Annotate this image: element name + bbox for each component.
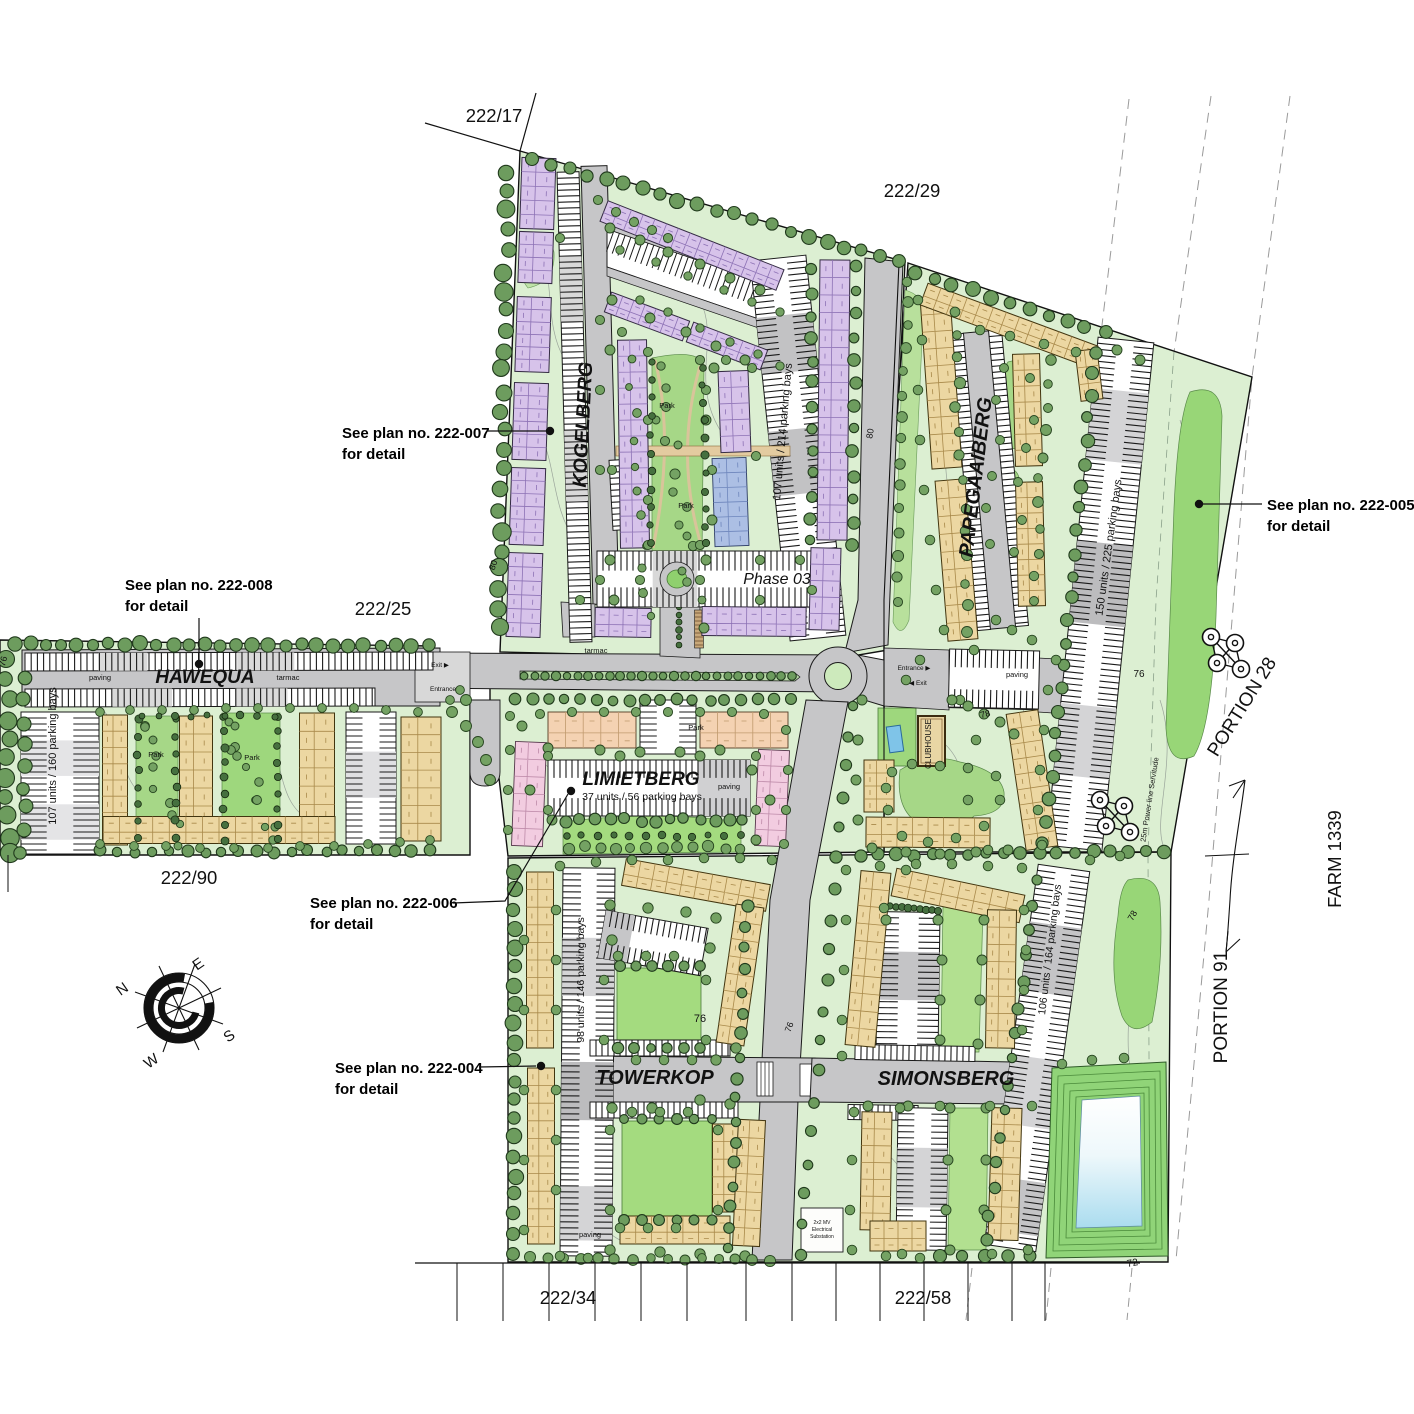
svg-text:FARM 1339: FARM 1339 <box>1324 810 1345 908</box>
svg-text:Park: Park <box>688 723 704 732</box>
svg-text:2x2 MV: 2x2 MV <box>814 1220 832 1226</box>
svg-text:for detail: for detail <box>342 446 405 463</box>
svg-text:See plan no. 222-005: See plan no. 222-005 <box>1267 497 1414 514</box>
svg-text:TOWERKOP: TOWERKOP <box>596 1067 714 1089</box>
svg-text:for detail: for detail <box>1267 518 1330 535</box>
svg-text:Electrical: Electrical <box>812 1227 832 1233</box>
svg-text:80: 80 <box>864 428 876 440</box>
svg-text:222/58: 222/58 <box>895 1287 952 1308</box>
svg-text:76: 76 <box>1133 669 1145 680</box>
svg-text:222/17: 222/17 <box>466 105 523 126</box>
svg-text:for detail: for detail <box>310 916 373 933</box>
svg-text:for detail: for detail <box>335 1081 398 1098</box>
svg-text:See plan no. 222-007: See plan no. 222-007 <box>342 425 490 442</box>
svg-text:paving: paving <box>1006 670 1028 679</box>
svg-text:LIMIETBERG: LIMIETBERG <box>582 769 699 790</box>
svg-text:Park: Park <box>148 750 164 759</box>
svg-text:See plan no. 222-004: See plan no. 222-004 <box>335 1060 483 1077</box>
svg-text:222/90: 222/90 <box>161 867 218 888</box>
svg-text:Entrance: Entrance <box>430 686 456 693</box>
svg-text:paving: paving <box>89 673 111 682</box>
svg-text:PORTION 91: PORTION 91 <box>1211 951 1232 1064</box>
svg-text:222/34: 222/34 <box>540 1287 597 1308</box>
svg-text:CLUBHOUSE: CLUBHOUSE <box>924 719 933 769</box>
svg-text:Phase 03: Phase 03 <box>743 571 811 588</box>
svg-text:SIMONSBERG: SIMONSBERG <box>878 1068 1015 1090</box>
svg-text:Entrance ▶: Entrance ▶ <box>898 665 932 672</box>
svg-text:222/29: 222/29 <box>884 180 941 201</box>
svg-text:37 units / 56 parking bays: 37 units / 56 parking bays <box>582 791 702 803</box>
svg-text:107 units / 160 parking bays: 107 units / 160 parking bays <box>47 687 59 825</box>
svg-text:◀ Exit: ◀ Exit <box>909 680 927 687</box>
svg-text:See plan no. 222-008: See plan no. 222-008 <box>125 577 273 594</box>
svg-text:Exit ▶: Exit ▶ <box>431 662 450 669</box>
svg-text:222/25: 222/25 <box>355 598 412 619</box>
svg-text:Park: Park <box>659 401 675 410</box>
svg-text:tarmac: tarmac <box>277 673 300 682</box>
svg-text:paving: paving <box>579 1230 601 1239</box>
svg-text:See plan no. 222-006: See plan no. 222-006 <box>310 895 458 912</box>
svg-text:for detail: for detail <box>125 598 188 615</box>
svg-text:tarmac: tarmac <box>585 646 608 655</box>
svg-text:Substation: Substation <box>810 1234 834 1240</box>
svg-text:98 units / 146 parking bays: 98 units / 146 parking bays <box>575 917 587 1043</box>
svg-text:Park: Park <box>678 501 694 510</box>
svg-text:paving: paving <box>718 782 740 791</box>
svg-text:Park: Park <box>244 753 260 762</box>
svg-text:HAWEQUA: HAWEQUA <box>155 667 254 688</box>
svg-text:76: 76 <box>694 1013 706 1025</box>
